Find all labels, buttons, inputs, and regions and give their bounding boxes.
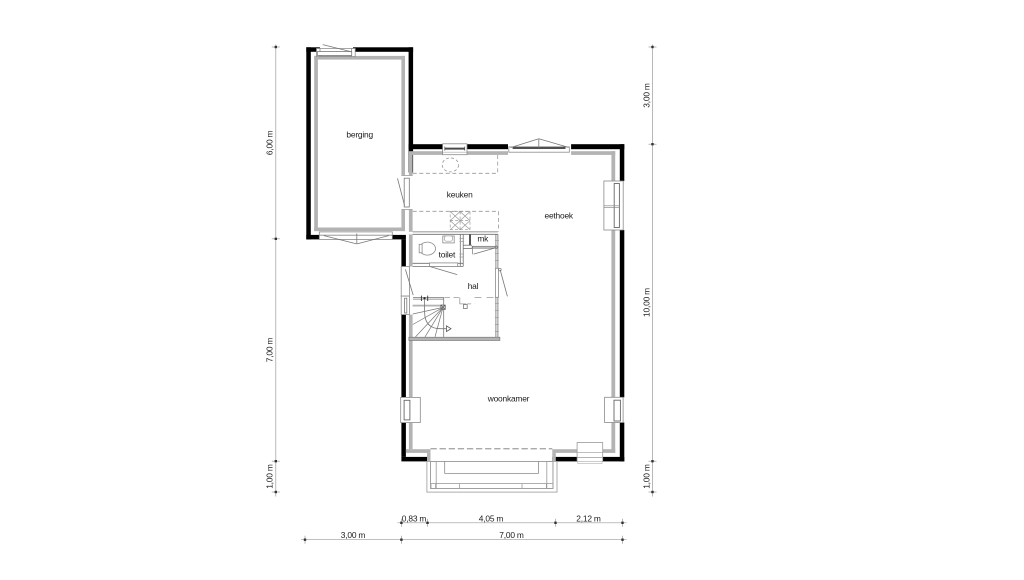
svg-text:berging: berging <box>346 129 373 139</box>
svg-text:6,00 m: 6,00 m <box>265 130 275 155</box>
svg-text:toilet: toilet <box>439 249 456 259</box>
svg-text:mk: mk <box>477 234 489 244</box>
svg-text:10,00 m: 10,00 m <box>641 288 651 317</box>
svg-text:3,00 m: 3,00 m <box>341 530 366 540</box>
svg-text:keuken: keuken <box>447 190 473 200</box>
svg-text:0,83 m: 0,83 m <box>402 513 427 523</box>
svg-text:7,00 m: 7,00 m <box>499 530 524 540</box>
svg-text:1,00 m: 1,00 m <box>265 464 275 489</box>
svg-text:4,05 m: 4,05 m <box>479 513 504 523</box>
svg-text:7,00 m: 7,00 m <box>265 338 275 363</box>
svg-text:hal: hal <box>468 281 479 291</box>
svg-text:2,12 m: 2,12 m <box>576 513 601 523</box>
svg-text:3,00 m: 3,00 m <box>641 83 651 108</box>
svg-text:eethoek: eethoek <box>544 211 573 221</box>
svg-text:1,00 m: 1,00 m <box>641 464 651 489</box>
svg-text:woonkamer: woonkamer <box>487 393 530 403</box>
